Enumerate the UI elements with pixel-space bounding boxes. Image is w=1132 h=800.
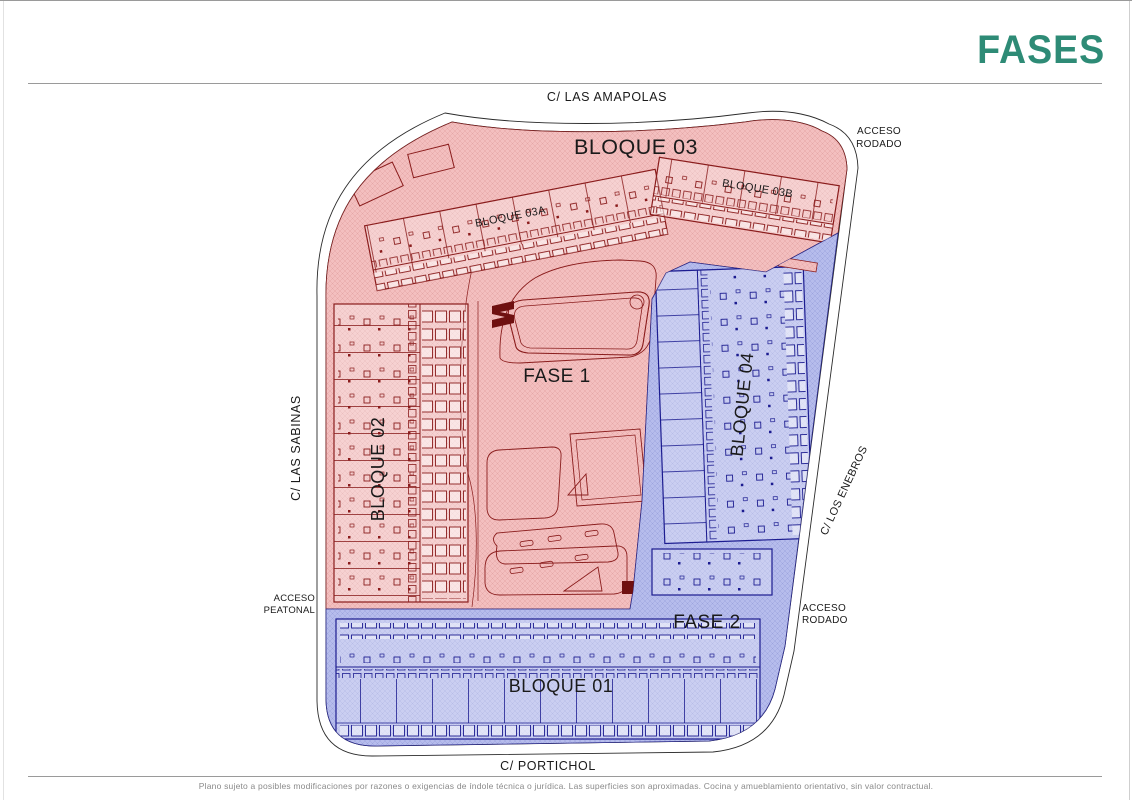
bloque-02-building (334, 304, 468, 602)
access-label-top: ACCESO RODADO (856, 126, 902, 150)
svg-text:PEATONAL: PEATONAL (264, 605, 315, 616)
site-plan: C/ LAS AMAPOLAS C/ LAS SABINAS C/ LOS EN… (0, 1, 1132, 800)
bloque-04-annex (652, 549, 772, 595)
page: FASES (0, 0, 1132, 800)
access-label-left: ACCESO PEATONAL (264, 593, 315, 616)
fase1-label: FASE 1 (523, 366, 590, 387)
street-label-enebros: C/ LOS ENEBROS (818, 444, 870, 537)
svg-text:ACCESO: ACCESO (274, 593, 315, 604)
block-label-02: BLOQUE 02 (368, 417, 388, 522)
street-label-portichol: C/ PORTICHOL (500, 759, 596, 773)
footer-rule (28, 776, 1102, 777)
disclaimer: Plano sujeto a posibles modificaciones p… (0, 781, 1132, 791)
svg-text:RODADO: RODADO (856, 139, 902, 150)
street-label-sabinas: C/ LAS SABINAS (289, 395, 303, 501)
svg-text:RODADO: RODADO (802, 615, 848, 626)
access-label-right: ACCESO RODADO (802, 603, 848, 626)
block-label-03: BLOQUE 03 (574, 135, 698, 159)
street-label-amapolas: C/ LAS AMAPOLAS (547, 90, 667, 104)
fase2-label: FASE 2 (673, 612, 740, 633)
block-label-01: BLOQUE 01 (509, 676, 614, 696)
svg-text:ACCESO: ACCESO (857, 126, 901, 137)
svg-text:ACCESO: ACCESO (802, 603, 846, 614)
